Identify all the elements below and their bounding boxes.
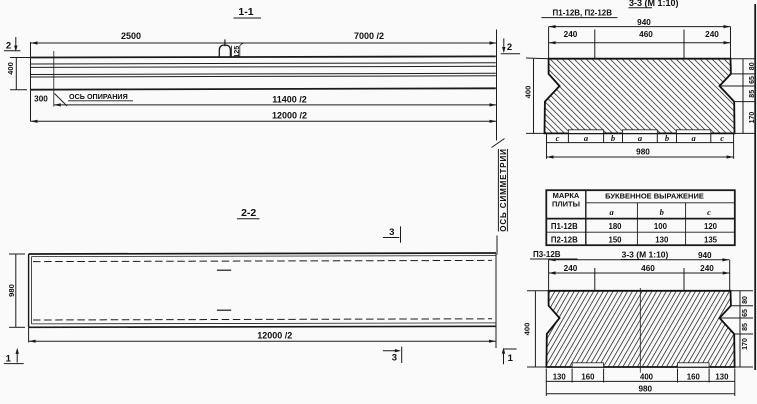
svg-text:2-2: 2-2 [241, 207, 256, 219]
svg-text:3-3 (М 1:10): 3-3 (М 1:10) [629, 0, 679, 8]
svg-text:П1-12В: П1-12В [551, 222, 578, 231]
svg-text:120: 120 [704, 222, 718, 231]
svg-text:b: b [611, 133, 615, 143]
svg-text:П2-12В: П2-12В [551, 236, 578, 245]
svg-text:130: 130 [715, 373, 729, 382]
svg-text:12000 /2: 12000 /2 [272, 111, 307, 121]
svg-text:300: 300 [34, 95, 48, 104]
svg-text:a: a [691, 133, 696, 143]
svg-text:b: b [660, 207, 664, 217]
svg-text:160: 160 [581, 373, 595, 382]
svg-text:240: 240 [564, 264, 578, 273]
svg-text:65: 65 [742, 309, 749, 317]
svg-text:c: c [707, 207, 711, 217]
svg-text:135: 135 [704, 236, 718, 245]
svg-text:11400 /2: 11400 /2 [272, 94, 307, 104]
svg-text:c: c [556, 133, 560, 143]
svg-text:ОСЬ СИММЕТРИИ: ОСЬ СИММЕТРИИ [499, 148, 508, 232]
svg-text:150: 150 [608, 236, 622, 245]
svg-text:125: 125 [232, 46, 241, 58]
svg-text:940: 940 [637, 18, 651, 27]
svg-text:2: 2 [6, 41, 11, 52]
svg-text:940: 940 [698, 251, 712, 260]
svg-text:400: 400 [640, 373, 654, 382]
svg-text:460: 460 [641, 264, 655, 273]
svg-text:ПЛИТЫ: ПЛИТЫ [552, 200, 580, 209]
svg-text:П1-12В, П2-12В: П1-12В, П2-12В [553, 9, 613, 18]
svg-text:80: 80 [742, 296, 749, 304]
svg-text:400: 400 [524, 86, 533, 99]
svg-text:2500: 2500 [121, 31, 141, 41]
svg-text:1-1: 1-1 [238, 6, 253, 18]
svg-text:400: 400 [6, 62, 15, 75]
svg-text:85: 85 [742, 323, 749, 331]
svg-text:1: 1 [6, 354, 12, 365]
svg-text:240: 240 [700, 264, 714, 273]
svg-text:3: 3 [389, 227, 394, 238]
svg-text:БУКВЕННОЕ ВЫРАЖЕНИЕ: БУКВЕННОЕ ВЫРАЖЕНИЕ [605, 192, 704, 201]
svg-text:180: 180 [608, 222, 622, 231]
svg-text:400: 400 [523, 323, 532, 336]
svg-text:160: 160 [687, 373, 701, 382]
svg-text:c: c [720, 133, 724, 143]
svg-text:a: a [609, 207, 614, 217]
svg-text:980: 980 [7, 284, 16, 297]
svg-text:100: 100 [654, 222, 668, 231]
svg-text:980: 980 [636, 148, 650, 157]
svg-text:170: 170 [742, 338, 749, 350]
svg-text:2: 2 [507, 42, 512, 53]
svg-text:980: 980 [638, 385, 652, 394]
svg-text:240: 240 [705, 30, 719, 39]
svg-text:П3-12В: П3-12В [533, 250, 561, 259]
svg-text:460: 460 [639, 30, 653, 39]
svg-text:130: 130 [655, 236, 669, 245]
svg-text:b: b [665, 133, 669, 143]
svg-text:3: 3 [392, 353, 397, 364]
svg-text:ОСЬ ОПИРАНИЯ: ОСЬ ОПИРАНИЯ [69, 92, 128, 101]
svg-text:3-3 (М 1:10): 3-3 (М 1:10) [622, 250, 669, 260]
svg-text:12000 /2: 12000 /2 [257, 330, 292, 340]
svg-text:1: 1 [508, 353, 514, 364]
svg-text:130: 130 [553, 373, 567, 382]
svg-text:240: 240 [564, 30, 578, 39]
svg-text:7000 /2: 7000 /2 [354, 31, 384, 41]
